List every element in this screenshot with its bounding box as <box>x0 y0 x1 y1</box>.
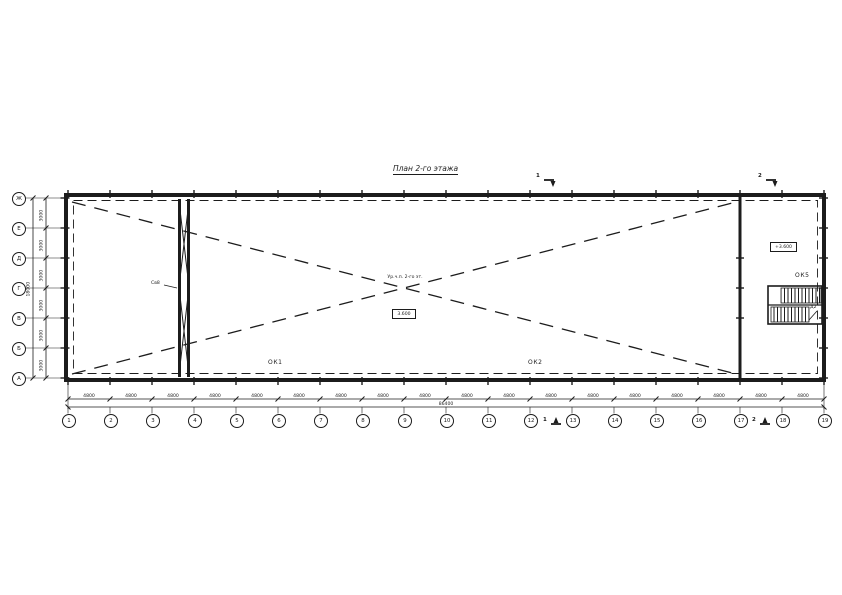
axis-circle-bottom: 2 <box>104 414 118 428</box>
axis-circle-bottom: 12 <box>524 414 538 428</box>
vertical-brace-shaft <box>164 199 189 377</box>
bottom-bay-dimension: 4800 <box>195 394 235 399</box>
drawing-title: План 2-го этажа <box>393 165 458 175</box>
axis-circle-left: Д <box>12 252 26 266</box>
axis-circle-left: Ж <box>12 192 26 206</box>
bottom-bay-dimension: 4800 <box>447 394 487 399</box>
section-mark-1-bottom-label: 1 <box>543 418 547 424</box>
left-bay-dimension: 3000 <box>40 262 45 282</box>
bottom-bay-dimension: 4800 <box>363 394 403 399</box>
axis-circle-bottom: 10 <box>440 414 454 428</box>
axis-circle-left: А <box>12 372 26 386</box>
axis-circle-left: В <box>12 312 26 326</box>
window-mark-ok1: ОК1 <box>268 360 283 366</box>
left-bay-dimension: 3000 <box>40 322 45 342</box>
center-note: Ур.ч.п. 2-го эт. <box>375 276 435 281</box>
bottom-bay-dimension: 4800 <box>615 394 655 399</box>
drawing-sheet: План 2-го этажа ОК1 ОК2 ОК5 Д2 Св8 Ур.ч.… <box>0 0 842 595</box>
left-bay-dimension: 3000 <box>40 352 45 372</box>
dimension-lines <box>31 196 827 410</box>
window-mark-ok5: ОК5 <box>795 273 810 279</box>
axis-circle-bottom: 4 <box>188 414 202 428</box>
bottom-bay-dimension: 4800 <box>321 394 361 399</box>
plan-geometry <box>0 0 842 595</box>
axis-circle-left: Б <box>12 342 26 356</box>
bottom-bay-dimension: 4800 <box>489 394 529 399</box>
bottom-bay-dimension: 4800 <box>237 394 277 399</box>
axis-circle-bottom: 5 <box>230 414 244 428</box>
axis-circle-bottom: 13 <box>566 414 580 428</box>
section-mark-1-top-label: 1 <box>536 174 540 180</box>
bottom-bay-dimension: 4800 <box>741 394 781 399</box>
axis-circle-left: Е <box>12 222 26 236</box>
section-marks <box>544 180 778 424</box>
axis-circle-bottom: 6 <box>272 414 286 428</box>
axis-circle-bottom: 19 <box>818 414 832 428</box>
bottom-bay-dimension: 4800 <box>69 394 109 399</box>
left-bay-dimension: 3000 <box>40 232 45 252</box>
axis-circle-bottom: 14 <box>608 414 622 428</box>
hall-diagonal-cross <box>72 202 736 374</box>
bottom-bay-dimension: 4800 <box>153 394 193 399</box>
bottom-bay-dimension: 4800 <box>279 394 319 399</box>
room-elevation-box: +3.600 <box>770 242 797 252</box>
axis-circle-bottom: 8 <box>356 414 370 428</box>
door-mark-d2: Д2 <box>810 306 817 311</box>
left-bay-dimension: 3000 <box>40 202 45 222</box>
left-bay-dimension: 3000 <box>40 292 45 312</box>
axis-circle-bottom: 9 <box>398 414 412 428</box>
center-elevation-box: 3.600 <box>392 309 416 319</box>
left-total-dimension: 18000 <box>27 277 32 297</box>
bottom-bay-dimension: 4800 <box>405 394 445 399</box>
bottom-bay-dimension: 4800 <box>657 394 697 399</box>
axis-circle-bottom: 3 <box>146 414 160 428</box>
bottom-bay-dimension: 4800 <box>783 394 823 399</box>
brace-mark-sv8: Св8 <box>151 282 160 287</box>
bottom-bay-dimension: 4800 <box>573 394 613 399</box>
axis-circle-bottom: 11 <box>482 414 496 428</box>
axis-circle-bottom: 1 <box>62 414 76 428</box>
axis-circle-bottom: 18 <box>776 414 790 428</box>
bottom-bay-dimension: 4800 <box>699 394 739 399</box>
section-mark-2-bottom-label: 2 <box>752 418 756 424</box>
bottom-total-dimension: 86400 <box>426 402 466 407</box>
window-mark-ok2: ОК2 <box>528 360 543 366</box>
axis-circle-bottom: 7 <box>314 414 328 428</box>
section-mark-2-top-label: 2 <box>758 174 762 180</box>
axis-circle-bottom: 17 <box>734 414 748 428</box>
bottom-bay-dimension: 4800 <box>111 394 151 399</box>
glazing-dashed-line <box>74 201 818 374</box>
axis-circle-left: Г <box>12 282 26 296</box>
axis-circle-bottom: 15 <box>650 414 664 428</box>
axis-circle-bottom: 16 <box>692 414 706 428</box>
bottom-bay-dimension: 4800 <box>531 394 571 399</box>
